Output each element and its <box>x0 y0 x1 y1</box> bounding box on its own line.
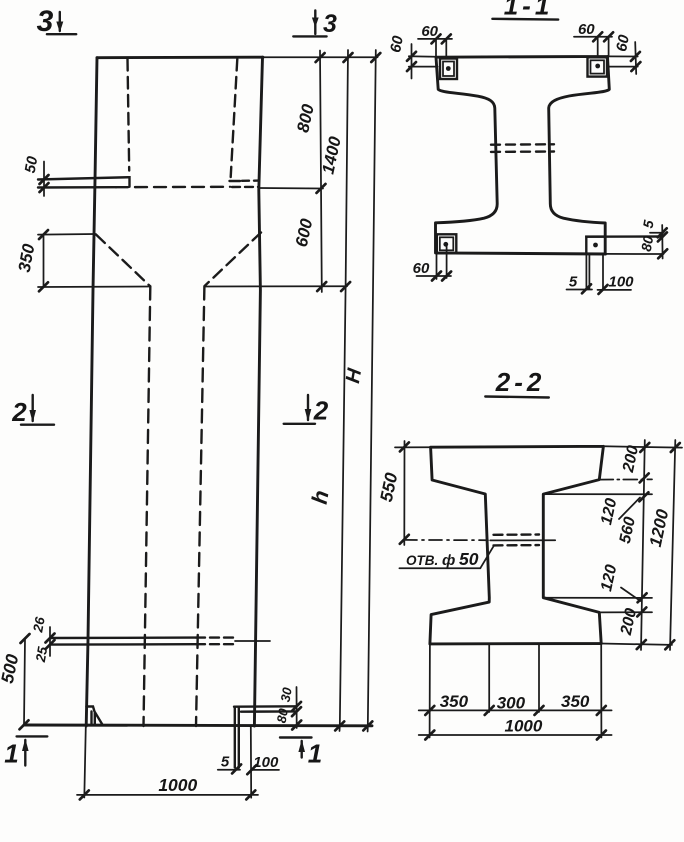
svg-text:2: 2 <box>11 397 27 427</box>
svg-text:3: 3 <box>323 10 337 38</box>
svg-text:1: 1 <box>308 739 322 769</box>
svg-text:100: 100 <box>253 754 279 771</box>
svg-text:2: 2 <box>313 396 329 426</box>
svg-text:350: 350 <box>561 692 590 711</box>
svg-text:60: 60 <box>413 260 430 277</box>
svg-text:25: 25 <box>33 645 51 664</box>
svg-text:60: 60 <box>578 21 595 38</box>
svg-text:26: 26 <box>30 615 48 634</box>
svg-text:80: 80 <box>638 234 656 252</box>
svg-text:1: 1 <box>4 739 18 769</box>
svg-text:1000: 1000 <box>158 775 197 795</box>
svg-text:300: 300 <box>497 693 526 712</box>
svg-text:350: 350 <box>440 692 469 711</box>
svg-text:1000: 1000 <box>504 717 542 736</box>
svg-text:5: 5 <box>569 274 578 291</box>
svg-text:2-2: 2-2 <box>495 367 546 397</box>
svg-text:100: 100 <box>608 273 634 290</box>
svg-text:5: 5 <box>221 754 230 771</box>
svg-text:60: 60 <box>421 23 438 40</box>
svg-text:1-1: 1-1 <box>504 0 554 21</box>
